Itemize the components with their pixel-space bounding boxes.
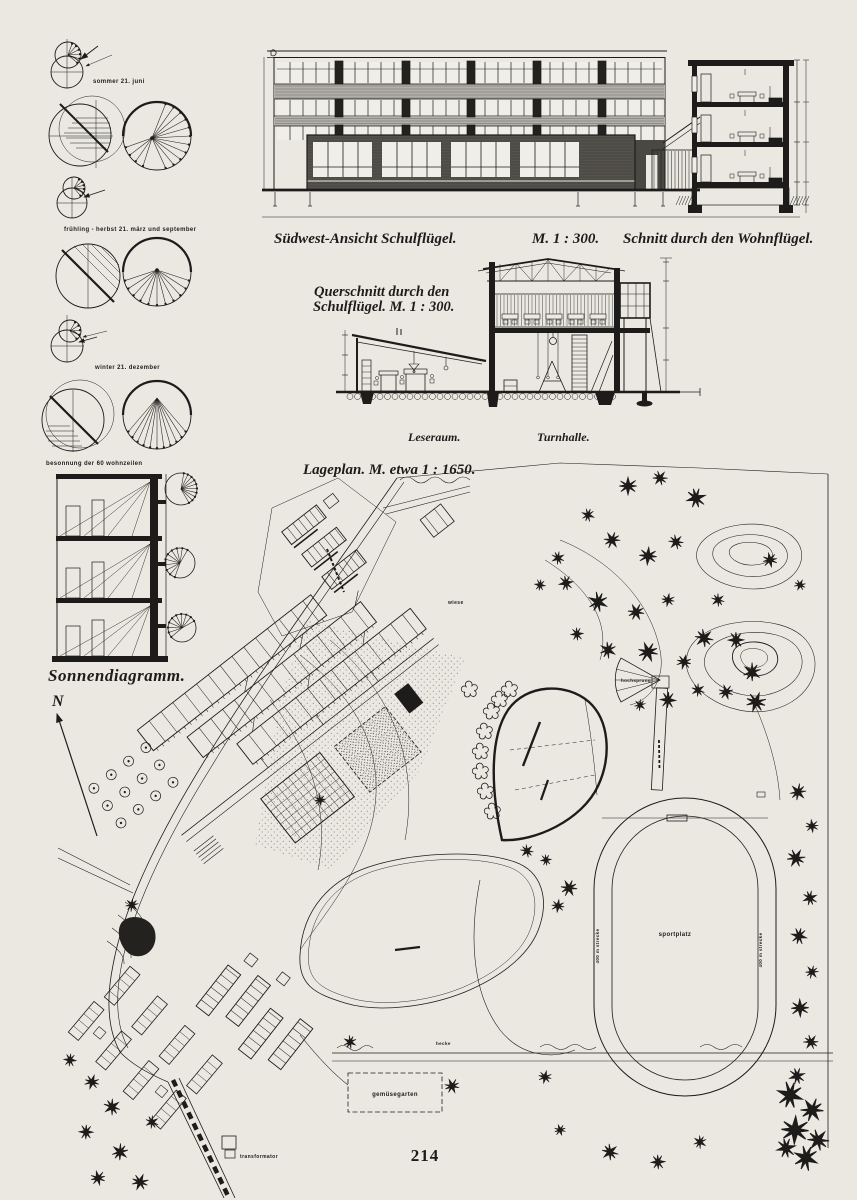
winter-label: winter 21. dezember xyxy=(94,365,160,371)
north-label: N xyxy=(51,693,65,710)
site-plan-drawing xyxy=(58,463,833,1198)
annex-wing xyxy=(307,135,635,190)
sportplatz-label: sportplatz xyxy=(659,932,692,938)
north-arrow-icon xyxy=(57,714,97,836)
wohnfluegel-section-drawing xyxy=(676,60,809,213)
pond-blob xyxy=(119,917,156,956)
elevation-caption: Südwest-Ansicht Schulflügel. xyxy=(274,231,457,247)
leseraum-label: Leseraum. xyxy=(407,430,460,444)
transformator-label: transformator xyxy=(240,1154,278,1160)
sun-diagram-title: Sonnendiagramm. xyxy=(48,666,185,685)
housing-rows-upper xyxy=(258,478,396,636)
scanned-book-page: sommer 21. juni frühling - herbst 21. mä… xyxy=(0,0,857,1200)
cross-section-drawing xyxy=(336,258,700,407)
gemuesegarten-label: gemüsegarten xyxy=(372,1092,418,1098)
summer-label: sommer 21. juni xyxy=(93,79,145,85)
sun-diagram-winter xyxy=(51,315,107,362)
trees-layer xyxy=(63,468,833,1193)
wohnfluegel-section-caption: Schnitt durch den Wohnflügel. xyxy=(623,231,813,247)
elevation-scale-label: M. 1 : 300. xyxy=(531,231,599,247)
sun-chart-winter-pair xyxy=(42,380,191,452)
track-label-right: 400 m strecke xyxy=(758,932,763,967)
site-plan-caption: Lageplan. M. etwa 1 : 1650. xyxy=(302,462,476,478)
turnhalle-label: Turnhalle. xyxy=(537,430,590,444)
sun-diagram-spring xyxy=(57,177,105,218)
transformer-building xyxy=(222,1136,236,1158)
besonnung-section-drawing xyxy=(52,473,198,662)
spring-label: frühling - herbst 21. märz und september xyxy=(64,227,197,233)
sun-chart-spring-pair xyxy=(56,238,191,308)
cross-section-caption-line1: Querschnitt durch den xyxy=(314,284,449,300)
housing-rows-lower xyxy=(59,963,232,1132)
sun-diagram-column xyxy=(42,39,198,836)
track-label-left: 400 m strecke xyxy=(595,928,600,963)
cross-section-caption-line2: Schulflügel. M. 1 : 300. xyxy=(313,299,454,315)
sun-chart-summer-pair xyxy=(49,96,191,170)
meadow-loop xyxy=(300,854,544,1008)
teardrop-yard xyxy=(472,689,606,841)
running-track xyxy=(594,792,776,1096)
besonnung-label: besonnung der 60 wohnzeilen xyxy=(46,461,142,467)
architectural-drawings: sommer 21. juni frühling - herbst 21. mä… xyxy=(0,0,857,1200)
hecke-label: hecke xyxy=(436,1041,451,1046)
hochsprung-label: hochsprung xyxy=(621,678,651,683)
wiese-label: wiese xyxy=(447,600,464,606)
page-number: 214 xyxy=(411,1146,440,1165)
southwest-elevation-drawing xyxy=(262,50,800,217)
labels-layer: sommer 21. juni frühling - herbst 21. mä… xyxy=(46,79,813,1165)
